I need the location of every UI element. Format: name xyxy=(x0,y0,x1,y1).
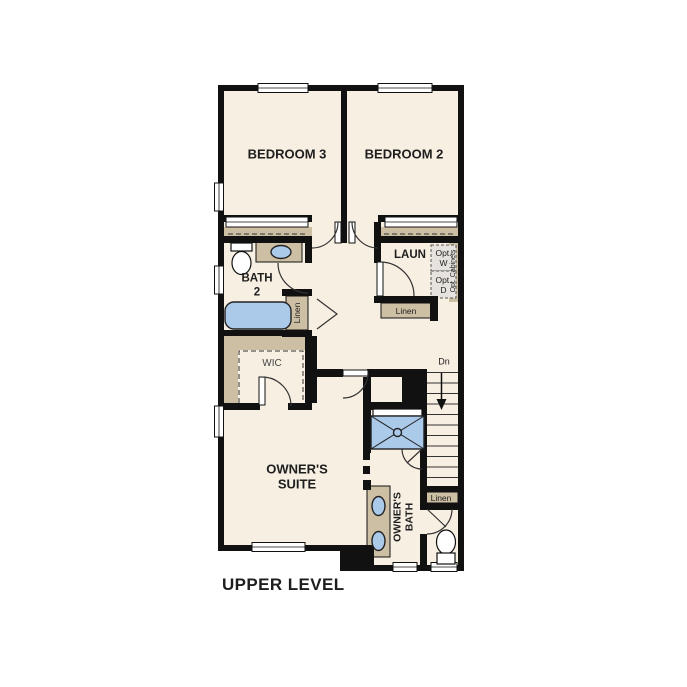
shower-icon xyxy=(371,409,424,449)
stairs-down-label: Dn xyxy=(438,357,450,368)
opt-cabinets-label: Opt. Cabinets xyxy=(449,250,457,293)
room-label-bath-2: BATH 2 xyxy=(241,272,272,299)
linen-label-stairs: Linen xyxy=(431,492,452,502)
vanity-sink-icon xyxy=(372,532,385,551)
owners-bath-line1: OWNER'S xyxy=(392,492,404,542)
room-label-laundry: LAUN xyxy=(394,249,426,263)
linen-label-bath2: Linen xyxy=(292,303,302,324)
floor-plan-page: BEDROOM 3 BEDROOM 2 BATH 2 LAUN WIC OWNE… xyxy=(0,0,687,687)
bathtub-icon xyxy=(225,302,291,329)
page-title: UPPER LEVEL xyxy=(222,575,344,595)
room-label-owners-suite: OWNER'S SUITE xyxy=(266,462,328,493)
room-label-bedroom-2: BEDROOM 2 xyxy=(365,146,444,161)
linen-label-laundry: Linen xyxy=(396,305,417,315)
vanity-sink-icon xyxy=(372,497,385,516)
owners-suite-line1: OWNER'S xyxy=(266,462,328,477)
toilet-icon xyxy=(437,530,456,564)
room-label-wic: WIC xyxy=(262,358,281,370)
room-label-bedroom-3: BEDROOM 3 xyxy=(248,146,327,161)
toilet-icon xyxy=(231,243,252,275)
bath2-line1: BATH xyxy=(241,272,272,286)
bath2-line2: 2 xyxy=(241,286,272,300)
owners-bath-line2: BATH xyxy=(404,492,416,542)
sink-icon xyxy=(271,246,291,259)
room-label-owners-bath: OWNER'S BATH xyxy=(392,492,417,542)
owners-suite-line2: SUITE xyxy=(266,477,328,492)
